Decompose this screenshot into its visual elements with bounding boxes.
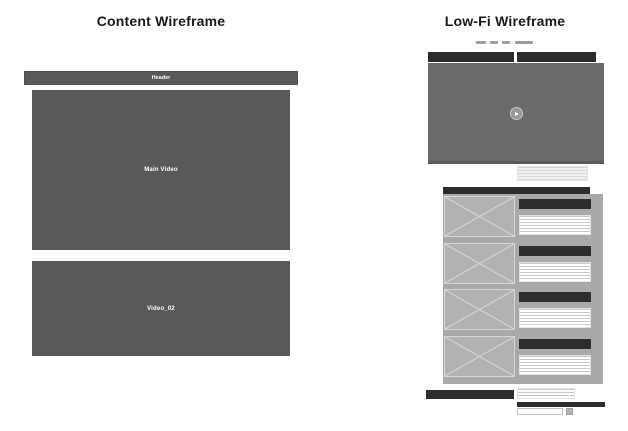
item-text-lines <box>519 262 591 282</box>
video-player-box <box>428 63 604 164</box>
wireframe-canvas: Content Wireframe Header Main Video Vide… <box>0 0 628 431</box>
item-text-lines <box>519 355 591 375</box>
list-item <box>444 243 591 284</box>
list-item <box>444 196 591 237</box>
nav-menu-item[interactable] <box>502 41 510 44</box>
footer-left-bar <box>426 390 514 399</box>
play-button[interactable] <box>510 107 523 120</box>
image-placeholder <box>444 196 515 237</box>
list-item-body <box>519 196 591 237</box>
image-cross-icon <box>445 244 514 283</box>
main-video-box: Main Video <box>32 90 290 250</box>
image-cross-icon <box>445 197 514 236</box>
footer-submit-button[interactable] <box>566 408 573 415</box>
lowfi-wireframe-title: Low-Fi Wireframe <box>417 13 593 29</box>
video-02-box: Video_02 <box>32 261 290 356</box>
item-title-bar <box>519 199 591 209</box>
nav-menu <box>476 41 533 44</box>
footer-thin-bar <box>517 402 605 407</box>
content-wireframe-title: Content Wireframe <box>24 13 298 29</box>
list-item <box>444 336 591 377</box>
list-item-body <box>519 243 591 284</box>
top-bar-right <box>517 52 596 62</box>
item-title-bar <box>519 292 591 302</box>
nav-menu-item[interactable] <box>515 41 533 44</box>
footer-input[interactable] <box>517 408 563 415</box>
list-item-body <box>519 289 591 330</box>
video-02-label: Video_02 <box>147 306 175 312</box>
header-bar: Header <box>24 71 298 85</box>
image-cross-icon <box>445 290 514 329</box>
image-placeholder <box>444 243 515 284</box>
image-cross-icon <box>445 337 514 376</box>
list-panel <box>443 194 603 384</box>
image-placeholder <box>444 289 515 330</box>
item-title-bar <box>519 246 591 256</box>
nav-menu-item[interactable] <box>476 41 486 44</box>
main-video-label: Main Video <box>144 167 178 173</box>
list-item <box>444 289 591 330</box>
footer-text-lines <box>517 388 575 399</box>
item-text-lines <box>519 308 591 328</box>
caption-text-lines <box>517 166 588 181</box>
image-placeholder <box>444 336 515 377</box>
header-bar-label: Header <box>152 75 171 81</box>
list-header-bar <box>443 187 590 194</box>
list-item-body <box>519 336 591 377</box>
play-icon <box>515 112 519 116</box>
nav-menu-item[interactable] <box>490 41 498 44</box>
item-text-lines <box>519 215 591 235</box>
item-title-bar <box>519 339 591 349</box>
top-bar-left <box>428 52 514 62</box>
